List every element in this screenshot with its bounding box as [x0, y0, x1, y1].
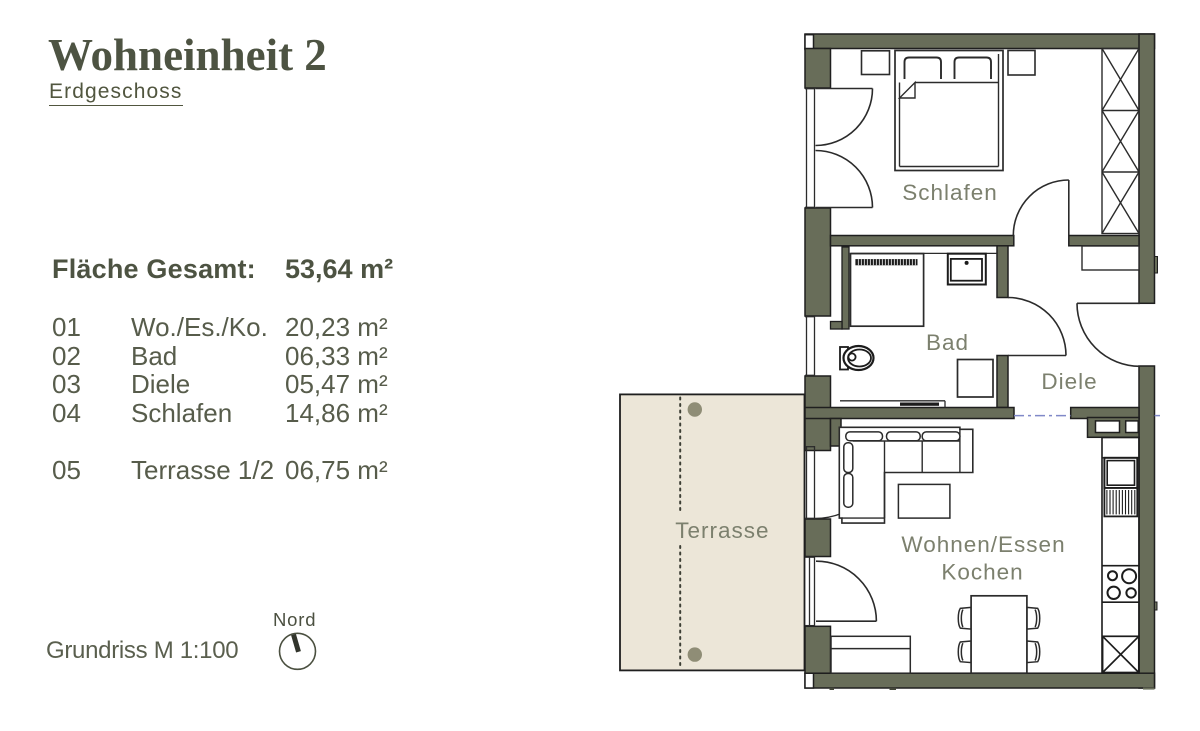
svg-text:Diele: Diele: [1041, 369, 1097, 394]
svg-text:Kochen: Kochen: [941, 560, 1023, 585]
svg-text:Wohnen/Essen: Wohnen/Essen: [901, 532, 1065, 557]
svg-text:Terrasse: Terrasse: [675, 518, 769, 543]
svg-text:Bad: Bad: [926, 330, 969, 355]
svg-text:Schlafen: Schlafen: [902, 180, 998, 205]
